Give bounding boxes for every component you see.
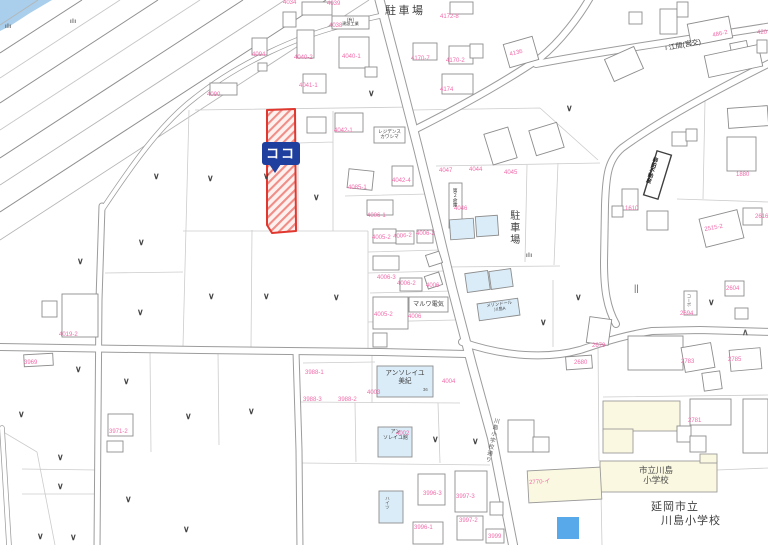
building [392,166,413,186]
building [396,231,414,244]
building [725,281,744,296]
building [684,291,697,315]
map-canvas[interactable]: 4034403940384040-24040-14041-14094409041… [0,0,768,545]
building [373,297,408,329]
map-geometry [0,0,768,545]
building [690,436,706,452]
building [490,502,503,515]
building [455,471,487,512]
building [449,46,473,64]
building [486,529,504,543]
building [529,122,564,155]
building [252,38,267,55]
building [24,353,54,367]
building [702,371,722,391]
building [735,308,748,319]
building [107,441,123,452]
building [700,454,717,463]
building [465,270,490,292]
building [424,272,442,289]
building [687,16,732,46]
building [672,132,687,146]
building [681,343,715,373]
building [475,215,498,236]
building [533,437,549,452]
building [628,336,683,370]
building [379,491,403,523]
building [42,301,57,317]
building [660,9,677,34]
building [258,63,267,71]
building [484,127,517,165]
building [347,169,374,191]
building [307,117,326,133]
building [727,137,756,171]
building [600,461,717,492]
building [400,278,422,291]
koko-marker[interactable]: ココ [262,142,300,165]
pool [557,517,579,539]
building [377,366,433,397]
building [677,426,691,442]
building [373,229,396,243]
building [365,67,377,77]
building [302,2,332,15]
building [612,206,623,217]
building [743,399,768,453]
building [743,208,762,225]
water-area [0,0,52,31]
building [409,297,448,312]
building [489,269,513,290]
building [622,189,638,210]
building [413,522,443,544]
building [729,348,762,372]
building [450,2,473,14]
building [477,298,520,321]
building [603,401,680,431]
building [457,516,483,540]
building [417,230,433,243]
building [686,129,697,141]
building [297,30,314,58]
building [374,127,405,143]
building [378,427,412,457]
building [470,44,483,58]
building [425,251,442,267]
building [367,200,393,215]
building [62,294,98,337]
building [449,218,474,240]
building [586,317,611,346]
building [442,74,473,94]
building [566,355,593,370]
building [644,151,672,199]
building [108,414,133,436]
building [757,40,767,53]
building [373,256,399,270]
building [677,2,688,17]
building [210,83,237,95]
building [629,12,642,24]
marker-tail [269,164,281,179]
building [727,106,768,129]
building [603,429,633,453]
building [647,211,668,230]
building [413,43,437,60]
building [373,333,387,347]
building [335,113,363,132]
building [303,74,326,93]
building [690,399,731,425]
building [332,16,369,29]
building [418,474,445,505]
building [508,420,534,452]
building [339,37,369,68]
building [699,210,744,248]
building [283,12,296,27]
building [527,467,602,503]
koko-marker-text: ココ [266,146,296,161]
